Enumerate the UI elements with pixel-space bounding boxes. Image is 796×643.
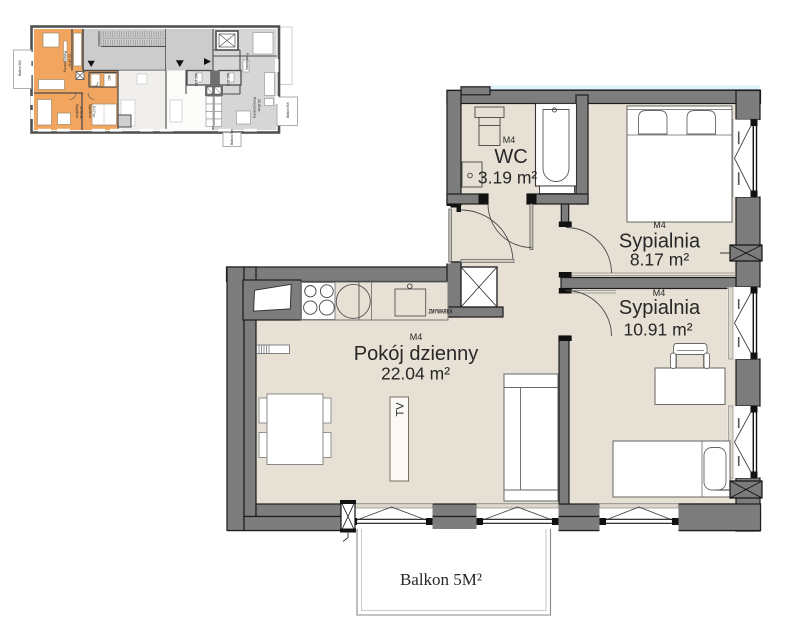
svg-text:WC: WC bbox=[107, 75, 111, 81]
svg-text:22.04 m²: 22.04 m² bbox=[381, 364, 450, 384]
svg-text:Pokój dzienny: Pokój dzienny bbox=[354, 343, 479, 365]
svg-text:26.43 m²: 26.43 m² bbox=[257, 99, 261, 113]
svg-text:Balkon 5M²: Balkon 5M² bbox=[286, 102, 290, 118]
svg-text:10.91 m²: 10.91 m² bbox=[79, 106, 83, 120]
svg-text:M4: M4 bbox=[410, 332, 423, 342]
svg-text:10.91 m²: 10.91 m² bbox=[623, 320, 692, 340]
svg-text:WC 3.02: WC 3.02 bbox=[226, 73, 230, 86]
svg-text:WC: WC bbox=[494, 146, 527, 168]
svg-text:Sypialnia: Sypialnia bbox=[88, 104, 92, 118]
svg-text:Sypialnia: Sypialnia bbox=[75, 104, 79, 118]
svg-text:Przedpokój: Przedpokój bbox=[245, 53, 249, 70]
svg-text:Balkon 5M²: Balkon 5M² bbox=[400, 570, 482, 589]
svg-text:Pokój dzienny: Pokój dzienny bbox=[253, 97, 257, 118]
svg-text:WC 1.48: WC 1.48 bbox=[194, 73, 198, 86]
svg-text:3.19 m²: 3.19 m² bbox=[478, 168, 537, 188]
svg-text:M4: M4 bbox=[653, 220, 666, 230]
svg-text:Pokój dzienny: Pokój dzienny bbox=[63, 51, 67, 72]
svg-text:22.04 m²: 22.04 m² bbox=[68, 54, 72, 68]
svg-text:Sypialnia: Sypialnia bbox=[619, 297, 701, 319]
svg-text:M4: M4 bbox=[503, 135, 516, 145]
svg-text:Balkon 5M²: Balkon 5M² bbox=[18, 60, 22, 76]
svg-text:ZMYWARKA: ZMYWARKA bbox=[429, 309, 453, 316]
svg-text:8.17 m²: 8.17 m² bbox=[92, 106, 96, 118]
svg-text:TV: TV bbox=[395, 402, 407, 417]
svg-text:8.17 m²: 8.17 m² bbox=[630, 250, 689, 270]
